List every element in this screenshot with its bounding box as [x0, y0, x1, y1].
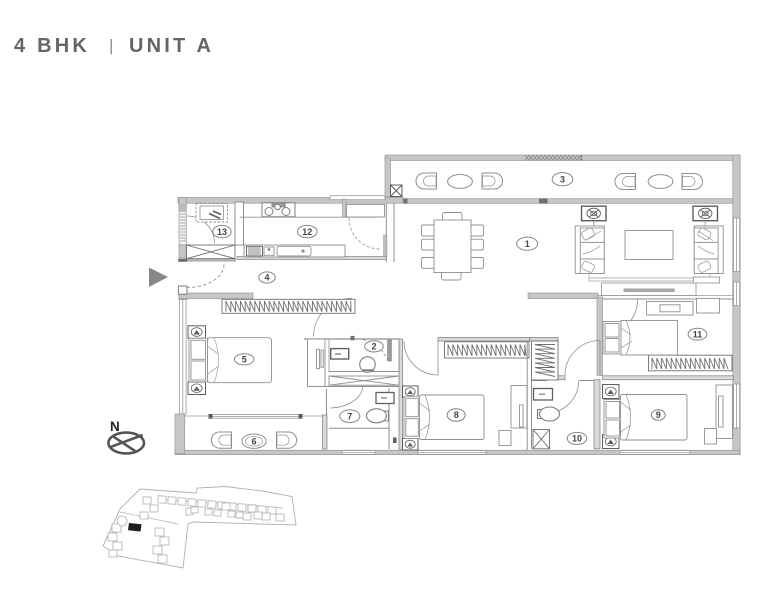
svg-text:UNIT A: UNIT A: [129, 35, 214, 57]
svg-text:4 BHK: 4 BHK: [14, 35, 90, 57]
svg-text:11: 11: [693, 329, 703, 339]
svg-text:8: 8: [454, 410, 459, 420]
svg-text:2: 2: [371, 342, 376, 352]
svg-text:N: N: [110, 419, 120, 434]
svg-text:5: 5: [242, 355, 247, 365]
svg-text:4: 4: [264, 273, 269, 283]
svg-text:7: 7: [347, 411, 352, 421]
svg-text:13: 13: [217, 227, 227, 237]
svg-text:|: |: [109, 36, 113, 55]
svg-text:12: 12: [302, 227, 312, 237]
svg-text:9: 9: [656, 410, 661, 420]
svg-text:10: 10: [572, 434, 582, 444]
svg-text:1: 1: [525, 239, 530, 249]
svg-text:6: 6: [251, 436, 256, 446]
svg-text:3: 3: [560, 175, 565, 185]
